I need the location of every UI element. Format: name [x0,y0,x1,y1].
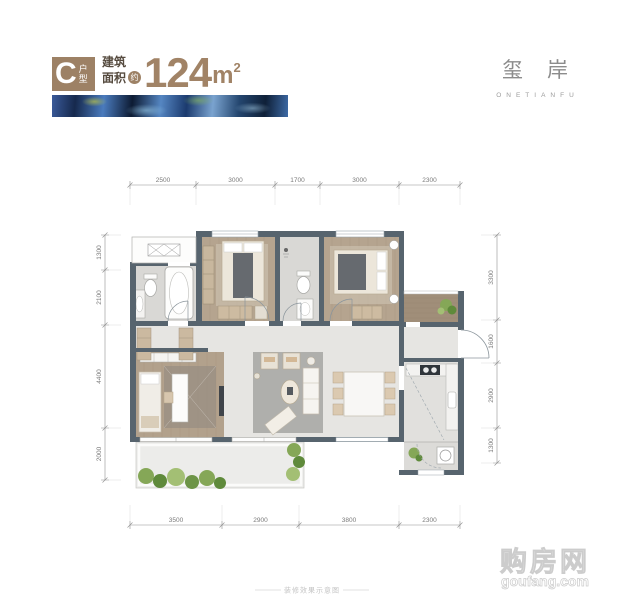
dim-bottom-1: 3500 [169,517,184,524]
dim-bottom-3: 3800 [342,517,357,524]
desk-chair [164,392,173,403]
dim-top-2: 3000 [228,177,243,184]
dining-chair [385,372,395,383]
watermark-domain: goufang.com [501,573,589,589]
tv-console [219,386,224,416]
shower-head-icon [284,248,288,252]
toilet-icon [145,280,157,297]
dim-right-1: 3300 [488,270,495,285]
dining-chair [385,388,395,399]
washer-icon [437,447,454,464]
toilet-icon [297,277,310,294]
dim-left-4: 2000 [96,446,103,461]
dim-top-5: 2300 [422,177,437,184]
side-table [307,357,315,365]
dim-bottom-2: 2900 [253,517,268,524]
floor-plan: 2500 3000 1700 3000 2300 3500 2900 3800 … [0,0,617,600]
caption-text: 装修效果示意图 [284,586,340,595]
nightstand [390,295,399,304]
dim-top-1: 2500 [156,177,171,184]
floor-lamp [254,373,260,379]
dim-top-4: 3000 [352,177,367,184]
window [336,438,388,442]
sink-icon [448,392,456,408]
nightstand [390,241,399,250]
toilet-tank [297,271,310,276]
dresser [218,306,252,319]
footer-caption: 装修效果示意图 [255,586,369,595]
blanket [338,254,366,290]
dining-furniture [333,372,395,416]
entry-hall-floor [404,326,458,362]
dim-left-1: 1300 [96,245,103,260]
balcony-railing [404,291,458,294]
dim-top-3: 1700 [290,177,305,184]
site-watermark: 购房网 goufang.com [500,547,590,589]
dim-left-3: 4400 [96,369,103,384]
sofa [303,368,319,414]
dim-bottom-4: 2300 [422,517,437,524]
dim-left-2: 2100 [96,290,103,305]
mirror-symbol [148,244,180,256]
entry-door-arc [461,330,489,358]
dining-chair [333,388,343,399]
dresser [352,306,382,319]
dining-table [344,372,384,416]
dining-chair [333,404,343,415]
toilet-tank [144,274,157,279]
living-room-furniture [253,352,323,435]
dim-right-3: 2900 [488,388,495,403]
dining-chair [385,404,395,415]
stove-icon [420,365,440,375]
dim-right-4: 1300 [488,438,495,453]
wardrobe [203,246,214,304]
dim-right-2: 1600 [488,334,495,349]
blanket [233,253,253,298]
desk [172,374,188,422]
dining-chair [333,372,343,383]
